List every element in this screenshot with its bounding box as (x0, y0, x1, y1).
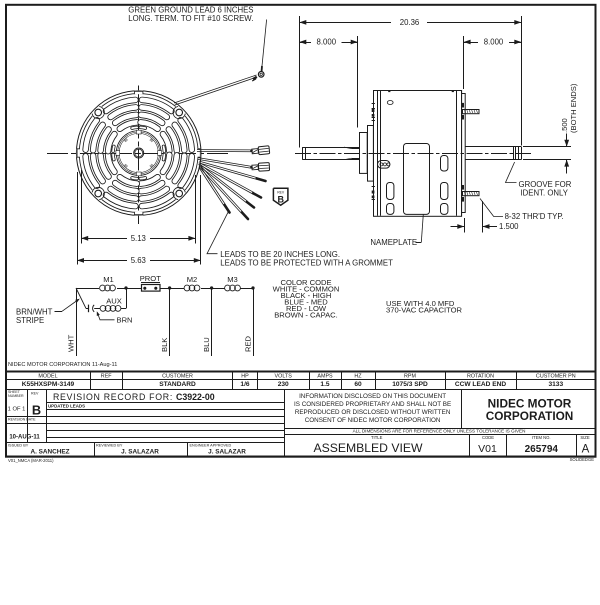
svg-text:IDENT. ONLY: IDENT. ONLY (521, 188, 569, 197)
svg-text:REVISION DATE: REVISION DATE (8, 418, 36, 422)
svg-text:LONG. TERM. TO FIT #10 SCREW.: LONG. TERM. TO FIT #10 SCREW. (128, 14, 253, 23)
svg-text:1.5: 1.5 (320, 381, 329, 388)
svg-text:5.13: 5.13 (131, 234, 146, 243)
svg-text:NIDEC MOTOR CORPORATION 11-Aug: NIDEC MOTOR CORPORATION 11-Aug-11 (8, 362, 117, 368)
svg-text:B: B (32, 403, 41, 418)
svg-text:IS CONSIDERED PROPRIETARY AND: IS CONSIDERED PROPRIETARY AND SHALL NOT … (294, 401, 451, 408)
svg-text:CCW LEAD END: CCW LEAD END (455, 381, 507, 388)
svg-text:LEADS TO BE 20 INCHES LONG.: LEADS TO BE 20 INCHES LONG. (220, 250, 340, 259)
svg-text:8.000: 8.000 (484, 38, 504, 47)
svg-text:BLK: BLK (160, 338, 169, 352)
svg-text:REVIEWED BY: REVIEWED BY (96, 443, 123, 447)
svg-text:ASSEMBLED VIEW: ASSEMBLED VIEW (313, 441, 423, 455)
svg-text:UPDATED LEADS: UPDATED LEADS (48, 403, 85, 408)
svg-text:265794: 265794 (525, 444, 559, 455)
svg-text:AUX: AUX (106, 296, 122, 305)
svg-text:ALL DIMENSIONS ARE FOR REFEREN: ALL DIMENSIONS ARE FOR REFERENCE ONLY UN… (353, 429, 526, 434)
svg-text:V01: V01 (478, 443, 497, 455)
svg-text:MODEL: MODEL (38, 373, 57, 379)
svg-text:LEADS TO BE PROTECTED WITH A G: LEADS TO BE PROTECTED WITH A GROMMET (220, 259, 393, 268)
svg-text:M2: M2 (187, 275, 198, 284)
svg-text:3133: 3133 (548, 381, 563, 388)
svg-text:CONSENT OF NIDEC MOTOR CORPORA: CONSENT OF NIDEC MOTOR CORPORATION (305, 417, 441, 424)
svg-text:NUMBER: NUMBER (8, 394, 24, 398)
svg-text:SOLIDEDGE: SOLIDEDGE (570, 457, 595, 462)
svg-text:TITLE: TITLE (371, 435, 383, 440)
svg-text:370-VAC CAPACITOR: 370-VAC CAPACITOR (386, 305, 462, 314)
svg-text:1075/3 SPD: 1075/3 SPD (392, 381, 428, 388)
svg-text:J. SALAZAR: J. SALAZAR (208, 448, 246, 455)
svg-text:1/6: 1/6 (240, 381, 249, 388)
svg-text:J. SALAZAR: J. SALAZAR (121, 448, 159, 455)
svg-text:8.000: 8.000 (317, 38, 337, 47)
svg-text:HP: HP (241, 373, 249, 379)
svg-text:STRIPE: STRIPE (16, 316, 44, 325)
svg-text:60: 60 (354, 381, 362, 388)
svg-text:NAMEPLATE: NAMEPLATE (370, 238, 417, 247)
svg-text:SIZE: SIZE (580, 435, 590, 440)
svg-text:B: B (277, 195, 284, 205)
svg-text:BRN: BRN (117, 315, 133, 324)
svg-text:A. SANCHEZ: A. SANCHEZ (30, 448, 69, 455)
svg-text:ROTATION: ROTATION (467, 373, 494, 379)
svg-text:CUSTOMER PN: CUSTOMER PN (536, 373, 576, 379)
svg-text:ISSUED BY: ISSUED BY (8, 443, 29, 447)
svg-text:10-AUG-11: 10-AUG-11 (9, 435, 40, 441)
svg-text:REVISION RECORD FOR:: REVISION RECORD FOR: (53, 392, 173, 402)
svg-text:1.500: 1.500 (499, 222, 519, 231)
svg-text:K55HXSPM-3149: K55HXSPM-3149 (22, 381, 75, 388)
svg-text:HZ: HZ (354, 373, 362, 379)
svg-text:1 OF 1: 1 OF 1 (8, 407, 26, 413)
svg-text:STANDARD: STANDARD (159, 381, 196, 388)
svg-text:V01_NMCA (MAR-2011): V01_NMCA (MAR-2011) (8, 458, 54, 463)
svg-text:A: A (582, 444, 590, 456)
svg-text:M1: M1 (103, 275, 114, 284)
svg-text:RED: RED (244, 335, 253, 352)
svg-text:REPRODUCED OR DISCLOSED WITHOU: REPRODUCED OR DISCLOSED WITHOUT WRITTEN (295, 409, 451, 416)
svg-text:20.36: 20.36 (400, 18, 420, 27)
svg-text:230: 230 (278, 381, 289, 388)
svg-text:REF: REF (101, 373, 112, 379)
svg-text:ENGINEER APPROVED: ENGINEER APPROVED (190, 443, 232, 447)
svg-text:C3922-00: C3922-00 (176, 392, 215, 402)
svg-text:PROT: PROT (140, 274, 161, 283)
svg-text:CORPORATION: CORPORATION (486, 409, 574, 423)
svg-text:BROWN - CAPAC.: BROWN - CAPAC. (274, 310, 338, 319)
svg-text:5.63: 5.63 (131, 256, 146, 265)
svg-text:WHT: WHT (67, 334, 76, 352)
svg-text:ITEM NO.: ITEM NO. (532, 435, 551, 440)
svg-text:CODE: CODE (482, 435, 494, 440)
svg-text:BLU: BLU (202, 337, 211, 352)
svg-text:CUSTOMER: CUSTOMER (162, 373, 193, 379)
svg-text:(BOTH ENDS): (BOTH ENDS) (569, 83, 578, 133)
svg-text:M3: M3 (227, 275, 238, 284)
svg-text:8-32 THR'D TYP.: 8-32 THR'D TYP. (505, 212, 564, 221)
svg-text:REV: REV (31, 392, 39, 396)
svg-text:VOLTS: VOLTS (275, 373, 293, 379)
svg-text:AMPS: AMPS (317, 373, 333, 379)
svg-text:INFORMATION DISCLOSED ON THIS: INFORMATION DISCLOSED ON THIS DOCUMENT (299, 393, 446, 400)
svg-text:RPM: RPM (404, 373, 416, 379)
